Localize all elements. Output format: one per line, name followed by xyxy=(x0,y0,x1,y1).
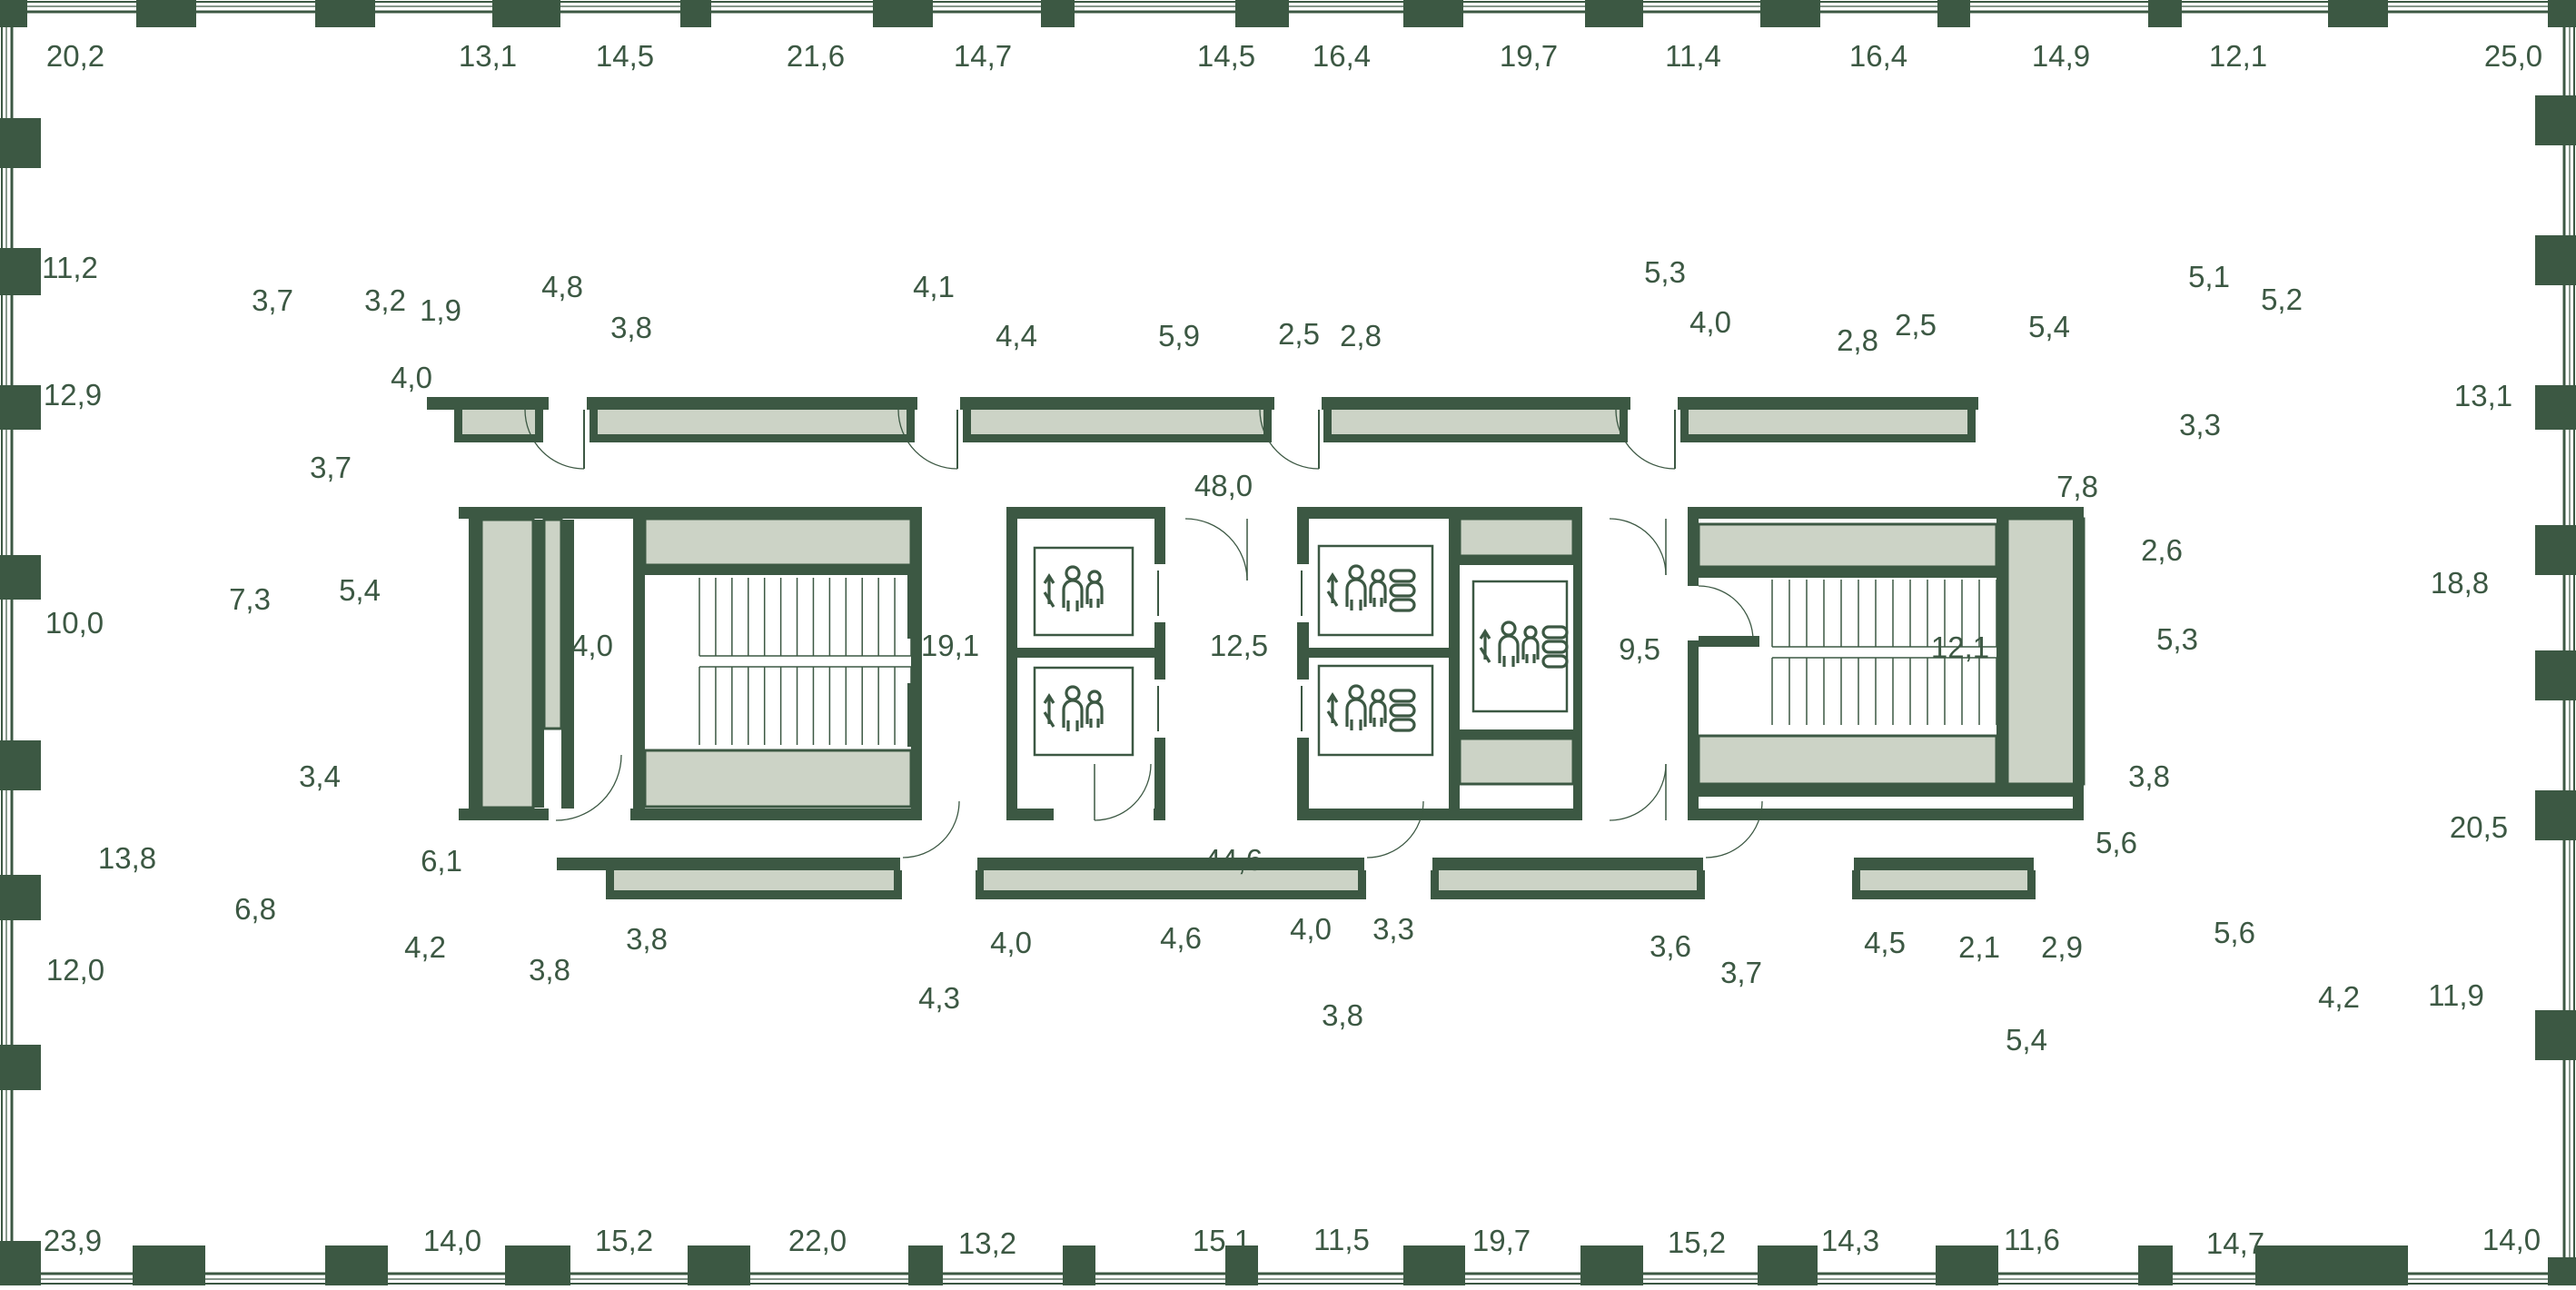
svg-text:10,0: 10,0 xyxy=(45,606,104,640)
svg-text:5,3: 5,3 xyxy=(1644,255,1686,289)
svg-text:48,0: 48,0 xyxy=(1194,469,1253,502)
svg-text:3,8: 3,8 xyxy=(610,311,652,344)
svg-text:1,9: 1,9 xyxy=(420,293,461,327)
svg-text:19,1: 19,1 xyxy=(921,629,979,662)
svg-text:22,0: 22,0 xyxy=(788,1224,847,1257)
svg-text:12,0: 12,0 xyxy=(46,953,104,987)
svg-text:21,6: 21,6 xyxy=(787,39,845,73)
svg-text:25,0: 25,0 xyxy=(2484,39,2542,73)
svg-text:18,8: 18,8 xyxy=(2431,566,2489,600)
svg-text:13,1: 13,1 xyxy=(2454,379,2512,412)
svg-text:4,0: 4,0 xyxy=(990,926,1032,959)
svg-text:7,8: 7,8 xyxy=(2056,470,2098,503)
svg-text:4,3: 4,3 xyxy=(918,981,960,1015)
svg-text:4,0: 4,0 xyxy=(1290,912,1332,946)
svg-text:11,5: 11,5 xyxy=(1313,1223,1370,1256)
svg-text:14,7: 14,7 xyxy=(2206,1226,2264,1260)
svg-text:3,8: 3,8 xyxy=(2128,759,2170,793)
svg-text:14,5: 14,5 xyxy=(596,39,654,73)
svg-text:2,5: 2,5 xyxy=(1895,308,1937,342)
svg-text:2,5: 2,5 xyxy=(1278,317,1320,351)
svg-text:5,4: 5,4 xyxy=(2028,310,2070,343)
svg-text:3,8: 3,8 xyxy=(1322,998,1363,1032)
svg-text:15,2: 15,2 xyxy=(595,1224,653,1257)
svg-text:3,7: 3,7 xyxy=(252,283,293,317)
svg-text:2,9: 2,9 xyxy=(2041,930,2083,964)
svg-text:5,6: 5,6 xyxy=(2214,916,2255,949)
svg-text:4,4: 4,4 xyxy=(996,319,1037,352)
svg-text:4,0: 4,0 xyxy=(571,629,613,662)
svg-text:7,3: 7,3 xyxy=(229,582,271,616)
svg-text:14,0: 14,0 xyxy=(2482,1223,2541,1256)
svg-text:5,4: 5,4 xyxy=(339,573,381,607)
svg-text:2,1: 2,1 xyxy=(1958,930,2000,964)
svg-text:3,8: 3,8 xyxy=(626,922,668,956)
svg-text:14,5: 14,5 xyxy=(1197,39,1255,73)
svg-text:5,1: 5,1 xyxy=(2188,260,2230,293)
svg-text:3,3: 3,3 xyxy=(2179,408,2221,442)
svg-text:6,1: 6,1 xyxy=(421,844,462,878)
svg-text:6,8: 6,8 xyxy=(234,892,276,926)
svg-text:11,9: 11,9 xyxy=(2428,978,2484,1012)
svg-text:11,4: 11,4 xyxy=(1665,39,1721,73)
svg-text:12,1: 12,1 xyxy=(1931,630,1989,664)
svg-text:5,9: 5,9 xyxy=(1158,319,1200,352)
svg-text:13,8: 13,8 xyxy=(98,841,156,875)
svg-text:5,2: 5,2 xyxy=(2261,283,2303,316)
svg-text:12,5: 12,5 xyxy=(1210,629,1268,662)
svg-text:15,2: 15,2 xyxy=(1668,1225,1726,1259)
svg-text:3,7: 3,7 xyxy=(310,451,352,484)
svg-text:20,2: 20,2 xyxy=(46,39,104,73)
svg-text:3,3: 3,3 xyxy=(1372,912,1414,946)
svg-text:4,2: 4,2 xyxy=(2318,980,2360,1014)
svg-text:13,1: 13,1 xyxy=(459,39,517,73)
svg-text:5,6: 5,6 xyxy=(2095,826,2137,859)
svg-text:3,7: 3,7 xyxy=(1720,956,1762,989)
svg-text:16,4: 16,4 xyxy=(1313,39,1371,73)
svg-text:19,7: 19,7 xyxy=(1472,1224,1531,1257)
svg-text:4,2: 4,2 xyxy=(404,930,446,964)
svg-text:15,1: 15,1 xyxy=(1193,1224,1251,1257)
svg-text:14,9: 14,9 xyxy=(2032,39,2090,73)
svg-text:5,4: 5,4 xyxy=(2006,1023,2047,1057)
svg-text:14,0: 14,0 xyxy=(423,1224,481,1257)
svg-text:14,3: 14,3 xyxy=(1821,1224,1879,1257)
svg-text:13,2: 13,2 xyxy=(958,1226,1016,1260)
svg-text:2,8: 2,8 xyxy=(1837,323,1878,357)
svg-text:14,7: 14,7 xyxy=(954,39,1012,73)
svg-text:11,6: 11,6 xyxy=(2004,1223,2060,1256)
svg-text:2,8: 2,8 xyxy=(1340,319,1382,352)
svg-text:2,6: 2,6 xyxy=(2141,533,2183,567)
svg-text:4,5: 4,5 xyxy=(1864,926,1906,959)
svg-text:5,3: 5,3 xyxy=(2156,622,2198,656)
svg-text:3,4: 3,4 xyxy=(299,759,341,793)
svg-text:4,8: 4,8 xyxy=(541,270,583,303)
svg-text:3,8: 3,8 xyxy=(529,953,570,987)
svg-text:3,2: 3,2 xyxy=(364,283,406,317)
svg-text:16,4: 16,4 xyxy=(1849,39,1907,73)
svg-text:4,0: 4,0 xyxy=(391,361,432,394)
svg-text:12,9: 12,9 xyxy=(44,378,102,412)
svg-text:4,0: 4,0 xyxy=(1689,305,1731,339)
svg-text:11,2: 11,2 xyxy=(42,251,98,284)
svg-text:20,5: 20,5 xyxy=(2450,810,2508,844)
svg-text:4,1: 4,1 xyxy=(913,270,955,303)
svg-text:3,6: 3,6 xyxy=(1650,929,1691,963)
svg-text:23,9: 23,9 xyxy=(44,1224,102,1257)
svg-text:12,1: 12,1 xyxy=(2209,39,2267,73)
svg-text:9,5: 9,5 xyxy=(1619,632,1660,666)
svg-text:4,6: 4,6 xyxy=(1160,921,1202,955)
svg-text:19,7: 19,7 xyxy=(1500,39,1558,73)
svg-text:44,6: 44,6 xyxy=(1204,843,1263,877)
